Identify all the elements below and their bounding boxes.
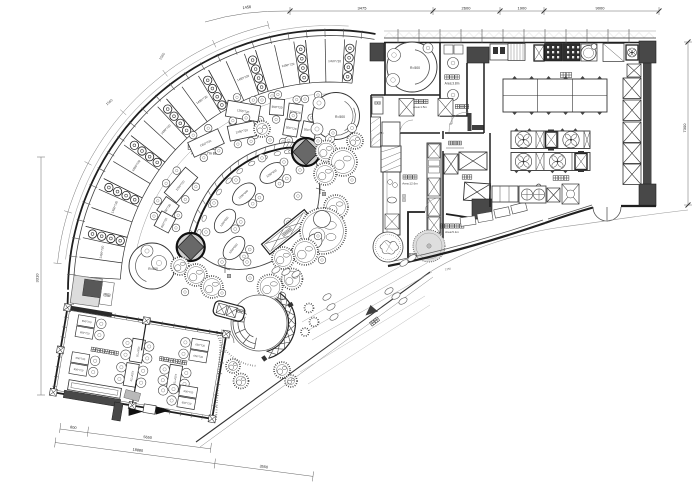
- svg-text:R=500: R=500: [410, 66, 420, 70]
- svg-text:Area:1.5m: Area:1.5m: [413, 105, 427, 109]
- svg-text:3475: 3475: [358, 6, 368, 11]
- svg-text:1450*720: 1450*720: [328, 59, 341, 63]
- svg-text:Area:12.6m: Area:12.6m: [402, 182, 418, 186]
- svg-text:7300: 7300: [682, 123, 687, 133]
- svg-text:1900: 1900: [518, 6, 528, 11]
- svg-text:R=500: R=500: [335, 115, 345, 119]
- svg-text:R=500: R=500: [148, 267, 158, 271]
- svg-text:2600: 2600: [462, 6, 472, 11]
- svg-text:800: 800: [70, 425, 77, 430]
- svg-text:550*720: 550*720: [272, 105, 283, 110]
- svg-text:3310: 3310: [35, 273, 40, 283]
- svg-text:Area:5.1m: Area:5.1m: [445, 230, 459, 234]
- svg-text:9000: 9000: [596, 6, 606, 11]
- svg-text:Area:3.8m: Area:3.8m: [445, 82, 460, 86]
